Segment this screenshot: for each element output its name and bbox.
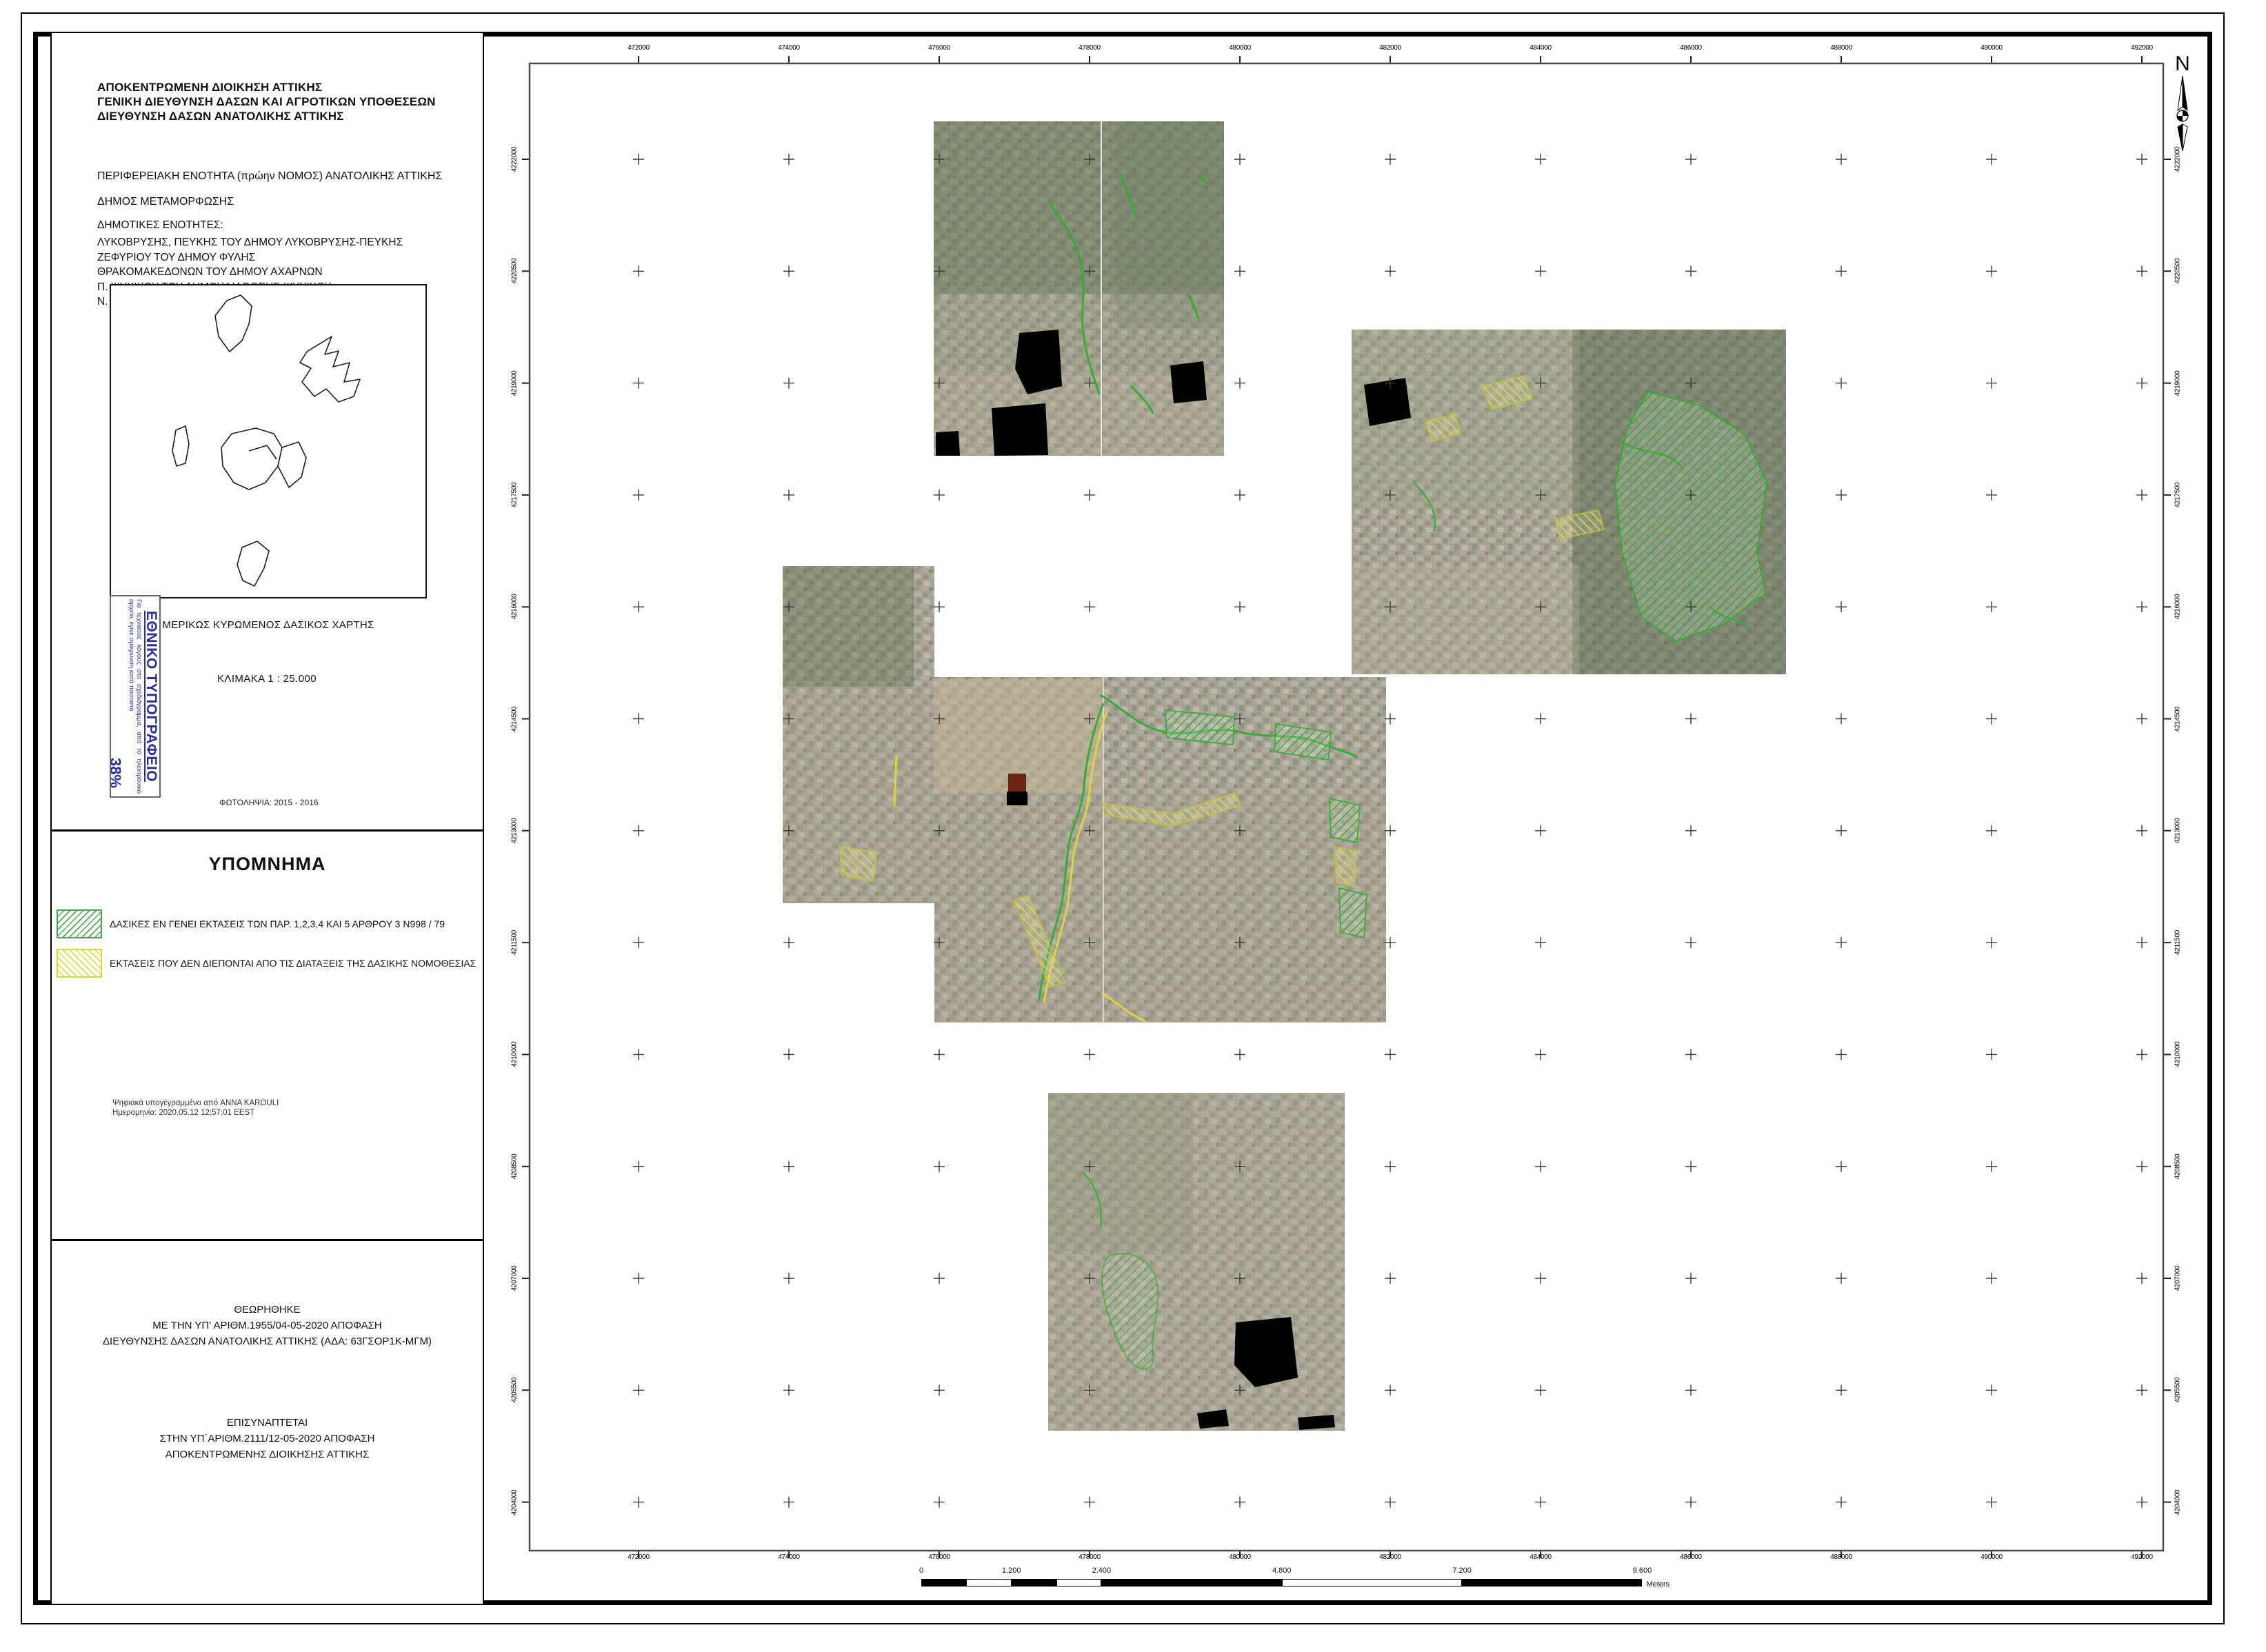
forest-hatch-swatch: [57, 909, 102, 938]
municipal-boundaries-drawing: [111, 285, 425, 597]
scale-bar-tick-label: 7.200: [1452, 1567, 1472, 1575]
grid-coordinate-label: 4214500: [511, 706, 519, 732]
municipal-unit-item: ΘΡΑΚΟΜΑΚΕΔΟΝΩΝ ΤΟΥ ΔΗΜΟΥ ΑΧΑΡΝΩΝ: [97, 265, 403, 280]
attached-line: ΣΤΗΝ ΥΠ΄ΑΡΙΘΜ.2111/12-05-2020 ΑΠΟΦΑΣΗ: [50, 1431, 484, 1447]
north-arrow: N: [2164, 51, 2201, 154]
grid-coordinate-label: 4222000: [2174, 147, 2182, 172]
grid-coordinate-label: 4210000: [2174, 1042, 2182, 1067]
scale-bar-tick-label: 0: [919, 1567, 923, 1575]
grid-coordinate-label: 4208500: [511, 1154, 519, 1179]
grid-coordinate-label: 476000: [928, 44, 950, 52]
grid-coordinate-label: 4216000: [2174, 594, 2182, 620]
agency-line-1: ΑΠΟΚΕΝΤΡΩΜΕΝΗ ΔΙΟΙΚΗΣΗ ΑΤΤΙΚΗΣ: [97, 80, 436, 94]
grid-coordinate-label: 474000: [778, 44, 800, 52]
grid-coordinate-label: 4222000: [511, 147, 519, 172]
grid-coordinate-label: 4207000: [2174, 1266, 2182, 1291]
approved-block: ΘΕΩΡΗΘΗΚΕ ΜΕ ΤΗΝ ΥΠ' ΑΡΙΘΜ.1955/04-05-20…: [50, 1302, 484, 1349]
scale-bar-segment: [1012, 1579, 1056, 1586]
north-arrow-icon: N: [2164, 51, 2201, 154]
grid-coordinate-label: 4219000: [2174, 370, 2182, 396]
stamp-rotated-content: ΕΘΝΙΚΟ ΤΥΠΟΓΡΑΦΕΙΟ Για τεχνικούς λόγους …: [111, 596, 159, 796]
grid-coordinate-label: 490000: [1981, 44, 2003, 52]
stamp-percent: 38%: [110, 596, 120, 796]
grid-coordinate-label: 478000: [1079, 1553, 1101, 1561]
approved-line: ΔΙΕΥΘΥΝΣΗΣ ΔΑΣΩΝ ΑΝΑΤΟΛΙΚΗΣ ΑΤΤΙΚΗΣ (ΑΔΑ…: [50, 1333, 484, 1349]
agency-line-3: ΔΙΕΥΘΥΝΣΗ ΔΑΣΩΝ ΑΝΑΤΟΛΙΚΗΣ ΑΤΤΙΚΗΣ: [97, 109, 436, 123]
attached-block: ΕΠΙΣΥΝΑΠΤΕΤΑΙ ΣΤΗΝ ΥΠ΄ΑΡΙΘΜ.2111/12-05-2…: [50, 1415, 484, 1462]
agency-line-2: ΓΕΝΙΚΗ ΔΙΕΥΘΥΝΣΗ ΔΑΣΩΝ ΚΑΙ ΑΓΡΟΤΙΚΩΝ ΥΠΟ…: [97, 94, 436, 109]
sidebar-divider-legend: [50, 829, 484, 832]
grid-coordinate-label: 488000: [1830, 44, 1852, 52]
grid-coordinate-label: 480000: [1229, 44, 1251, 52]
grid-coordinate-label: 492000: [2131, 1553, 2153, 1561]
grid-coordinate-label: 490000: [1981, 1553, 2003, 1561]
grid-coordinate-label: 4211500: [2174, 930, 2182, 955]
municipality-label: ΔΗΜΟΣ ΜΕΤΑΜΟΡΦΩΣΗΣ: [97, 196, 234, 208]
stamp-title: ΕΘΝΙΚΟ ΤΥΠΟΓΡΑΦΕΙΟ: [143, 596, 159, 796]
legend-item-label: ΔΑΣΙΚΕΣ ΕΝ ΓΕΝΕΙ ΕΚΤΑΣΕΙΣ ΤΩΝ ΠΑΡ. 1,2,3…: [110, 909, 445, 938]
grid-coordinate-label: 476000: [928, 1553, 950, 1561]
scale-bar-tick-label: 1.200: [1002, 1567, 1021, 1575]
grid-coordinate-label: 4214500: [2174, 706, 2182, 732]
regional-unit-label: ΠΕΡΙΦΕΡΕΙΑΚΗ ΕΝΟΤΗΤΑ (πρώην ΝΟΜΟΣ) ΑΝΑΤΟ…: [97, 170, 442, 183]
north-letter: N: [2175, 52, 2190, 75]
grid-coordinate-label: 484000: [1530, 44, 1552, 52]
grid-coordinate-label: 4204000: [2174, 1489, 2182, 1515]
grid-coordinate-label: 4208500: [2174, 1154, 2182, 1179]
attached-line: ΑΠΟΚΕΝΤΡΩΜΕΝΗΣ ΔΙΟΙΚΗΣΗΣ ΑΤΤΙΚΗΣ: [50, 1447, 484, 1462]
scale-bar-segment: [1056, 1579, 1101, 1586]
municipal-unit-item: ΖΕΦΥΡΙΟΥ ΤΟΥ ΔΗΜΟΥ ΦΥΛΗΣ: [97, 250, 403, 265]
grid-coordinate-label: 4217500: [2174, 482, 2182, 507]
grid-coordinate-label: 4204000: [511, 1489, 519, 1515]
photo-capture-label: ΦΩΤΟΛΗΨΙΑ: 2015 - 2016: [219, 798, 319, 807]
grid-coordinate-label: 482000: [1379, 44, 1401, 52]
grid-coordinate-label: 478000: [1079, 44, 1101, 52]
nonforest-hatch-swatch: [57, 949, 102, 978]
scale-bar-segment: [1462, 1579, 1642, 1586]
grid-coordinate-label: 486000: [1680, 44, 1702, 52]
printing-office-stamp: ΕΘΝΙΚΟ ΤΥΠΟΓΡΑΦΕΙΟ Για τεχνικούς λόγους …: [110, 595, 161, 798]
agency-header: ΑΠΟΚΕΝΤΡΩΜΕΝΗ ΔΙΟΙΚΗΣΗ ΑΤΤΙΚΗΣ ΓΕΝΙΚΗ ΔΙ…: [97, 80, 436, 123]
grid-coordinate-label: 484000: [1530, 1553, 1552, 1561]
grid-coordinate-label: 488000: [1830, 1553, 1852, 1561]
grid-coordinate-label: 480000: [1229, 1553, 1251, 1561]
scale-bar-tick-label: 4.800: [1272, 1567, 1292, 1575]
attached-line: ΕΠΙΣΥΝΑΠΤΕΤΑΙ: [50, 1415, 484, 1431]
grid-coordinate-label: 4220500: [511, 259, 519, 284]
grid-coordinate-label: 4219000: [511, 370, 519, 396]
municipal-units-heading: ΔΗΜΟΤΙΚΕΣ ΕΝΟΤΗΤΕΣ:: [97, 219, 223, 232]
grid-coordinate-label: 486000: [1680, 1553, 1702, 1561]
scale-bar-segment: [966, 1579, 1011, 1586]
grid-coordinate-label: 4213000: [511, 818, 519, 843]
overview-inset-map: [110, 284, 427, 598]
grid-coordinate-label: 4205500: [2174, 1378, 2182, 1403]
scale-bar-unit: Meters: [1646, 1580, 1670, 1589]
municipal-unit-item: ΛΥΚΟΒΡΥΣΗΣ, ΠΕΥΚΗΣ ΤΟΥ ΔΗΜΟΥ ΛΥΚΟΒΡΥΣΗΣ-…: [97, 235, 403, 250]
forest-map-sheet: ΑΠΟΚΕΝΤΡΩΜΕΝΗ ΔΙΟΙΚΗΣΗ ΑΤΤΙΚΗΣ ΓΕΝΙΚΗ ΔΙ…: [0, 0, 2266, 1652]
approved-line: ΘΕΩΡΗΘΗΚΕ: [50, 1302, 484, 1318]
scale-bar-segment: [1101, 1579, 1281, 1586]
signature-line-2: Ημερομηνία: 2020.05.12 12:57:01 EEST: [112, 1108, 279, 1118]
grid-coordinate-label: 4210000: [511, 1042, 519, 1067]
legend-title: ΥΠΟΜΝΗΜΑ: [50, 854, 484, 875]
grid-coordinate-label: 4216000: [511, 594, 519, 620]
grid-coordinate-label: 492000: [2131, 44, 2153, 52]
grid-coordinate-label: 4211500: [511, 930, 519, 955]
grid-coordinate-label: 4205500: [511, 1378, 519, 1403]
grid-coordinate-label: 474000: [778, 1553, 800, 1561]
legend-item-label: ΕΚΤΑΣΕΙΣ ΠΟΥ ΔΕΝ ΔΙΕΠΟΝΤΑΙ ΑΠΟ ΤΙΣ ΔΙΑΤΑ…: [110, 949, 476, 978]
grid-coordinate-label: 4220500: [2174, 259, 2182, 284]
signature-line-1: Ψηφιακά υπογεγραμμένο από ANNA KAROULI: [112, 1098, 279, 1108]
grid-coordinate-label: 4207000: [511, 1266, 519, 1291]
grid-coordinate-label: 4217500: [511, 482, 519, 507]
digital-signature: Ψηφιακά υπογεγραμμένο από ANNA KAROULI Η…: [112, 1098, 279, 1118]
grid-coordinate-label: 472000: [628, 1553, 650, 1561]
scale-bar-tick-label: 2.400: [1092, 1567, 1112, 1575]
scale-bar-segment: [1282, 1579, 1462, 1586]
grid-coordinate-label: 472000: [628, 44, 650, 52]
scale-label: ΚΛΙΜΑΚΑ 1 : 25.000: [217, 673, 317, 685]
grid-coordinate-label: 4213000: [2174, 818, 2182, 843]
approved-line: ΜΕ ΤΗΝ ΥΠ' ΑΡΙΘΜ.1955/04-05-2020 ΑΠΟΦΑΣΗ: [50, 1318, 484, 1333]
grid-coordinate-label: 482000: [1379, 1553, 1401, 1561]
scale-bar-tick-label: 9.600: [1633, 1567, 1652, 1575]
sidebar-divider-approval: [50, 1239, 484, 1241]
scale-bar-segment: [921, 1579, 966, 1586]
